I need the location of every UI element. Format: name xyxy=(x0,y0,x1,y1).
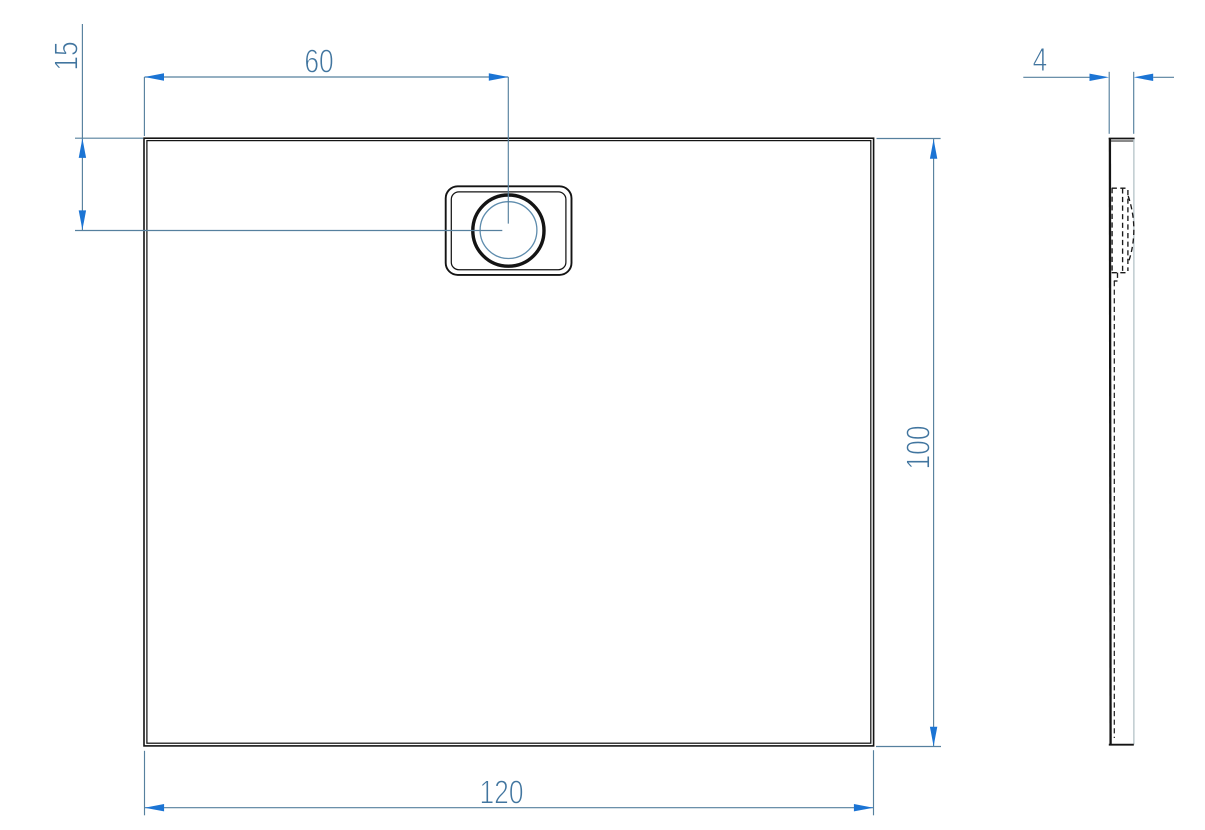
svg-text:4: 4 xyxy=(1033,42,1048,78)
svg-text:15: 15 xyxy=(49,41,85,70)
svg-text:120: 120 xyxy=(479,775,523,811)
svg-text:60: 60 xyxy=(304,44,333,80)
svg-text:100: 100 xyxy=(901,425,937,469)
